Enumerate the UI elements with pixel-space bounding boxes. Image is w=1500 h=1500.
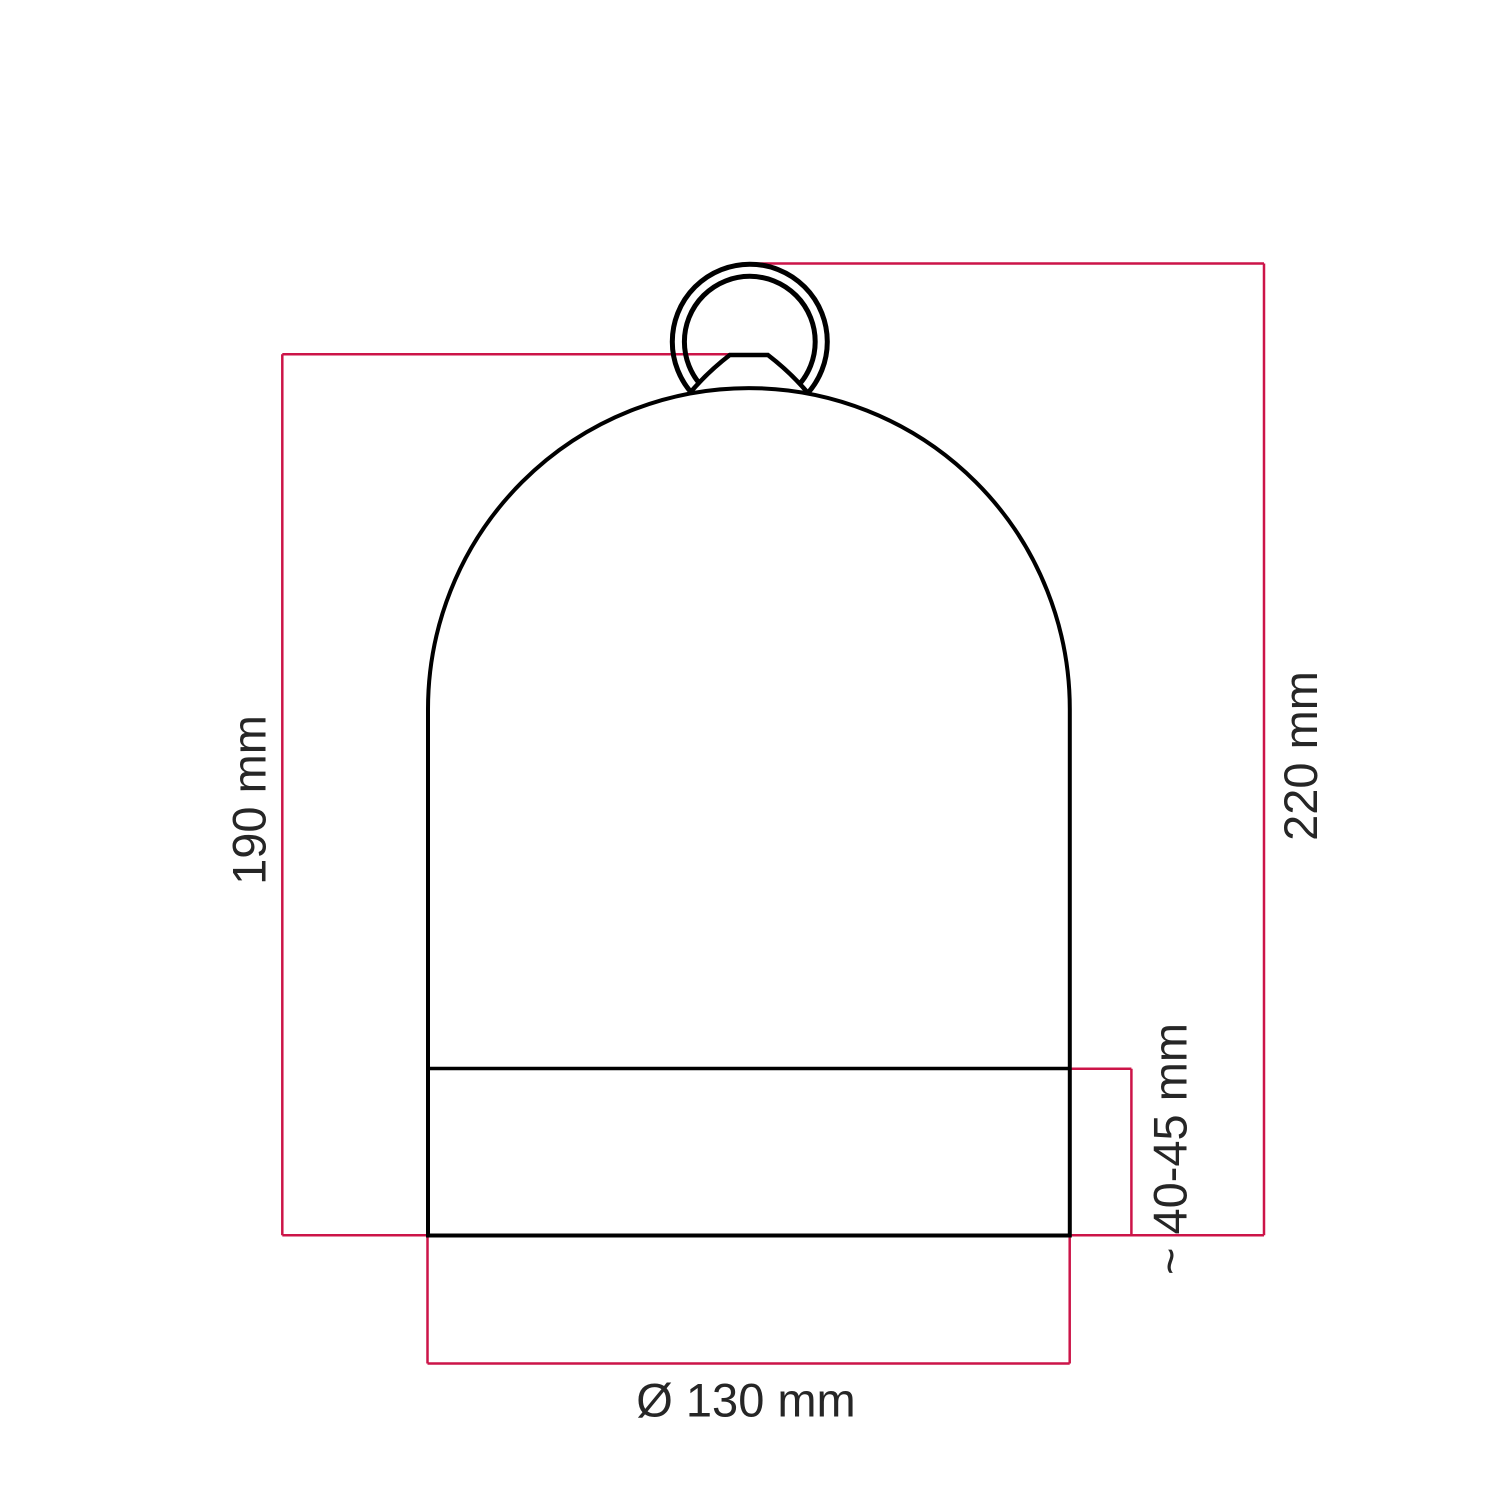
svg-text:220 mm: 220 mm (1274, 671, 1327, 841)
svg-text:Ø 130 mm: Ø 130 mm (636, 1374, 855, 1427)
svg-text:190 mm: 190 mm (223, 715, 276, 885)
svg-text:~ 40-45 mm: ~ 40-45 mm (1144, 1023, 1197, 1275)
